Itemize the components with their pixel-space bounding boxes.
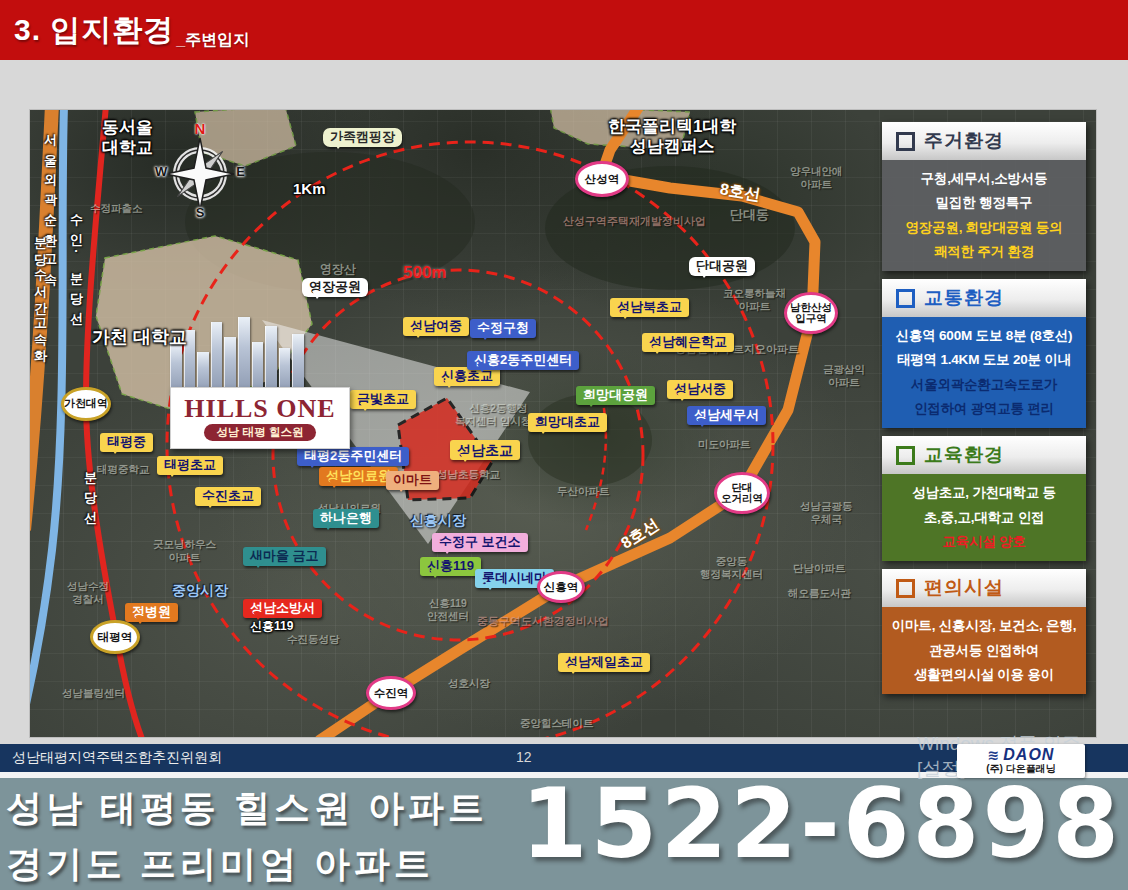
map-label-17: 태평2동주민센터 — [297, 447, 409, 466]
map-label-9: 태평초교 — [157, 456, 223, 475]
map-label-19: 하나은행 — [313, 509, 379, 528]
map-label-36: 신흥시장 — [410, 512, 466, 528]
map-label-6: 희망대초교 — [528, 413, 607, 432]
sidebar-panel-0: 주거환경구청,세무서,소방서등밀집한 행정특구영장공원, 희망대공원 등의쾌적한… — [882, 122, 1086, 271]
page-title: 3. 입지환경 — [14, 10, 174, 51]
phone-number: 1522-6898 — [521, 774, 1122, 875]
map-label-31: 가천 대학교 — [92, 327, 187, 348]
panel-body-2: 성남초교, 가천대학교 등초,중,고,대학교 인접교육시설 양호 — [882, 474, 1086, 561]
panel-bullet-icon — [896, 132, 915, 151]
map-label-32: 신흥119 — [250, 620, 293, 634]
panel-line-2-2: 교육시설 양호 — [885, 530, 1083, 554]
map-label-7: 성남초교 — [450, 440, 520, 460]
project-logo-text: HILLS ONE — [184, 396, 335, 422]
map-label-3: 성남혜은학교 — [642, 333, 734, 352]
panel-line-1-2: 서울외곽순환고속도로가 — [885, 373, 1083, 397]
location-map: N W E S HILLS ONE 성남 태평 힐스원 주거환경구청,세무서,소… — [30, 110, 1096, 737]
compass-n: N — [195, 120, 206, 137]
panel-line-0-3: 쾌적한 주거 환경 — [885, 240, 1083, 264]
company-logo: ≋ DAON (주) 다온플래닝 — [957, 744, 1085, 778]
map-label-8: 태평중 — [100, 433, 153, 452]
panel-body-0: 구청,세무서,소방서등밀집한 행정특구영장공원, 희망대공원 등의쾌적한 주거 … — [882, 160, 1086, 271]
sidebar-panel-1: 교통환경신흥역 600M 도보 8분 (8호선)태평역 1.4KM 도보 20분… — [882, 279, 1086, 428]
map-label-38: 500m — [403, 263, 446, 283]
panel-line-2-0: 성남초교, 가천대학교 등 — [885, 481, 1083, 505]
panel-line-0-1: 밀집한 행정특구 — [885, 191, 1083, 215]
panel-bullet-icon — [896, 446, 915, 465]
station-3: 신흥역 — [537, 571, 585, 603]
map-label-14: 가족캠핑장 — [323, 128, 402, 147]
panel-line-2-1: 초,중,고,대학교 인접 — [885, 506, 1083, 530]
map-label-11: 성남제일초교 — [558, 653, 650, 672]
panel-header-2: 교육환경 — [882, 436, 1086, 474]
page-number: 12 — [516, 749, 532, 765]
waves-icon: ≋ — [988, 748, 1000, 762]
map-bg-text-17: 성남볼링센터 — [62, 687, 125, 700]
map-bg-text-7: 금광삼익 아파트 — [823, 363, 865, 389]
map-label-13: 단대공원 — [689, 257, 755, 276]
map-bg-text-14: 성남수정 경찰서 — [67, 580, 109, 606]
map-label-25: 성남소방서 — [243, 599, 322, 618]
map-bg-text-19: 성호시장 — [448, 677, 490, 690]
map-label-12: 영장공원 — [302, 278, 368, 297]
map-label-33: 1Km — [293, 180, 326, 197]
map-bg-text-1: 영장산 — [320, 262, 356, 277]
bottom-banner: 성남 태평동 힐스원 아파트 경기도 프리미엄 아파트 1522-6898 — [0, 778, 1128, 890]
station-2: 단대 오거리역 — [714, 472, 770, 514]
project-logo-box: HILLS ONE 성남 태평 힐스원 — [170, 387, 350, 449]
panel-line-1-1: 태평역 1.4KM 도보 20분 이내 — [885, 348, 1083, 372]
map-bg-text-11: 성남초등학교 — [437, 468, 500, 481]
map-label-18: 성남세무서 — [687, 406, 766, 425]
panel-bullet-icon — [896, 289, 915, 308]
committee-name: 성남태평지역주택조합추진위원회 — [12, 749, 222, 767]
compass-w: W — [155, 164, 167, 179]
map-bg-text-18: 중앙힐스테이트 — [520, 717, 594, 730]
panel-title-1: 교통환경 — [924, 285, 1004, 311]
panel-header-0: 주거환경 — [882, 122, 1086, 160]
map-bg-text-24: 중동구역도시환경정비사업 — [477, 615, 609, 629]
slide: 3. 입지환경 _주변입지 — [0, 0, 1128, 890]
compass-star — [160, 136, 240, 212]
map-label-34: 8호선 — [719, 180, 762, 205]
map-bg-text-8: 두산아파트 — [557, 485, 610, 498]
map-bg-text-15: 태평중학교 — [97, 463, 150, 476]
panel-line-3-1: 관공서등 인접하여 — [885, 639, 1083, 663]
map-label-0: 성남여중 — [403, 317, 469, 336]
map-label-2: 성남북초교 — [610, 298, 689, 317]
map-label-21: 희망대공원 — [576, 386, 655, 405]
compass-rose: N W E S — [160, 122, 240, 222]
panel-title-0: 주거환경 — [924, 128, 1004, 154]
map-bg-text-16: 수진동성당 — [287, 633, 340, 646]
panel-line-1-0: 신흥역 600M 도보 8분 (8호선) — [885, 324, 1083, 348]
panel-line-0-0: 구청,세무서,소방서등 — [885, 167, 1083, 191]
company-name: (주) 다온플래닝 — [986, 763, 1055, 775]
slide-header: 3. 입지환경 _주변입지 — [0, 0, 1128, 60]
panel-bullet-icon — [896, 579, 915, 598]
map-label-16: 신흥2동주민센터 — [467, 351, 579, 370]
project-logo-subtitle: 성남 태평 힐스원 — [204, 424, 317, 441]
panel-title-3: 편의시설 — [924, 575, 1004, 601]
apartment-towers-render — [170, 308, 304, 392]
map-label-30: 한국폴리텍1대학 성남캠퍼스 — [608, 117, 736, 156]
banner-title-line2: 경기도 프리미엄 아파트 — [6, 840, 434, 889]
map-label-4: 성남서중 — [667, 380, 733, 399]
panel-header-1: 교통환경 — [882, 279, 1086, 317]
panel-header-3: 편의시설 — [882, 569, 1086, 607]
station-0: 산성역 — [575, 161, 629, 197]
map-bg-text-23: 성남금광동 우체국 — [800, 500, 853, 526]
page-subtitle: _주변입지 — [176, 30, 249, 51]
map-bg-text-2: 산성구역주택재개발정비사업 — [563, 215, 706, 229]
panel-line-3-0: 이마트, 신흥시장, 보건소, 은행, — [885, 614, 1083, 638]
station-5: 가천대역 — [61, 387, 111, 421]
map-bg-text-13: 굿모닝하우스 아파트 — [153, 538, 216, 564]
sidebar-panel-2: 교육환경성남초교, 가천대학교 등초,중,고,대학교 인접교육시설 양호 — [882, 436, 1086, 561]
map-bg-text-22: 해오름도서관 — [788, 587, 851, 600]
company-logo-name: DAON — [1003, 747, 1054, 763]
compass-e: E — [236, 164, 245, 179]
sidebar-panel-3: 편의시설이마트, 신흥시장, 보건소, 은행,관공서등 인접하여생활편의시설 이… — [882, 569, 1086, 694]
map-label-37: 중앙시장 — [172, 582, 228, 598]
map-bg-text-4: 양우내안애 아파트 — [790, 165, 843, 191]
map-label-35: 8호선 — [618, 515, 662, 553]
map-bg-text-0: 수정파출소 — [90, 202, 143, 215]
map-bg-text-5: 코오롱하늘채 아파트 — [723, 287, 786, 313]
compass-s: S — [196, 205, 205, 220]
info-sidebar: 주거환경구청,세무서,소방서등밀집한 행정특구영장공원, 희망대공원 등의쾌적한… — [882, 122, 1086, 694]
station-1: 남한산성 입구역 — [784, 292, 838, 334]
panel-line-1-3: 인접하여 광역교통 편리 — [885, 397, 1083, 421]
panel-body-3: 이마트, 신흥시장, 보건소, 은행,관공서등 인접하여생활편의시설 이용 용이 — [882, 607, 1086, 694]
map-label-28: 이마트 — [386, 471, 439, 490]
map-label-23: 수정구 보건소 — [432, 533, 528, 552]
map-label-41: 수인·분당선 — [68, 205, 83, 321]
map-label-15: 수정구청 — [470, 319, 536, 338]
panel-line-0-2: 영장공원, 희망대공원 등의 — [885, 216, 1083, 240]
panel-line-3-2: 생활편의시설 이용 용이 — [885, 663, 1083, 687]
map-bg-text-20: 단남아파트 — [793, 562, 846, 575]
panel-body-1: 신흥역 600M 도보 8분 (8호선)태평역 1.4KM 도보 20분 이내서… — [882, 317, 1086, 428]
map-label-26: 정병원 — [125, 603, 178, 622]
station-6: 태평역 — [90, 620, 140, 654]
map-bg-text-21: 중앙동 행정복지센터 — [700, 555, 763, 581]
map-bg-text-9: 미도아파트 — [698, 438, 751, 451]
map-bg-text-3: 단대동 — [730, 207, 769, 223]
map-label-22: 신흥119 — [420, 557, 481, 576]
map-label-42: 분당선 — [82, 463, 97, 520]
map-label-29: 동서울 대학교 — [102, 118, 153, 157]
station-4: 수진역 — [366, 676, 416, 710]
map-label-10: 수진초교 — [195, 487, 261, 506]
banner-title-line1: 성남 태평동 힐스원 아파트 — [6, 784, 488, 833]
map-label-40: 분당수서간고속화 — [32, 228, 47, 356]
map-label-5: 금빛초교 — [350, 390, 416, 409]
map-bg-text-25: 신흥119 안전센터 — [427, 597, 469, 623]
map-label-20: 새마을 금고 — [243, 547, 326, 566]
panel-title-2: 교육환경 — [924, 442, 1004, 468]
